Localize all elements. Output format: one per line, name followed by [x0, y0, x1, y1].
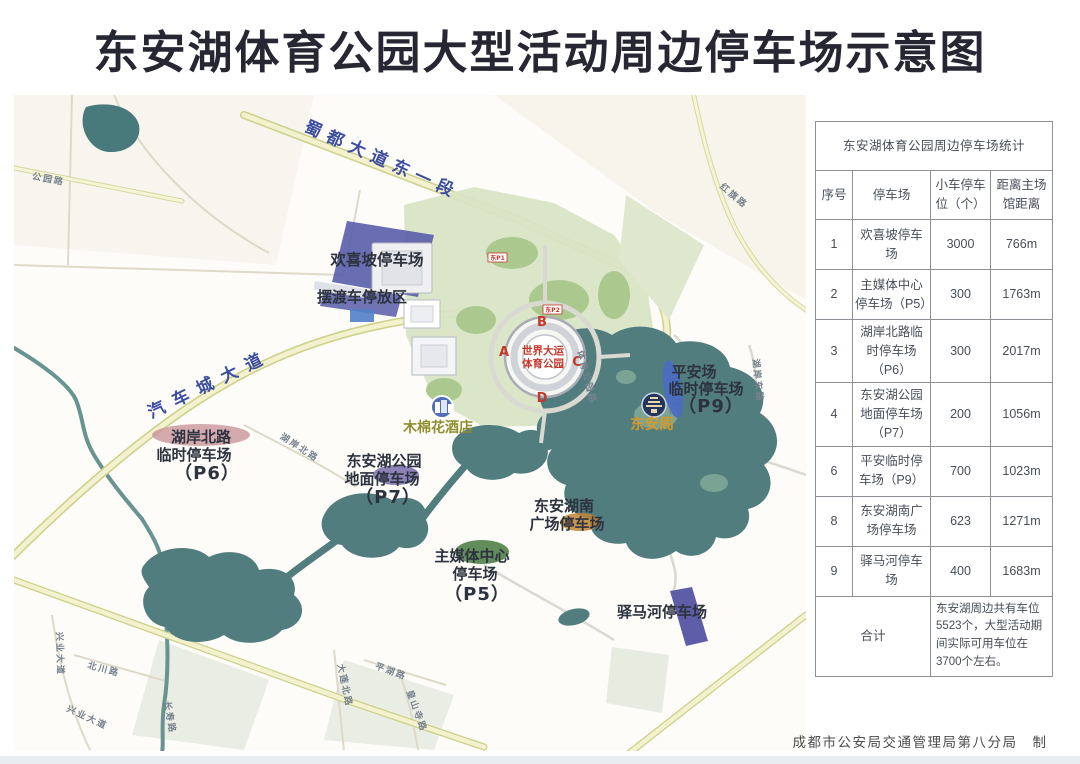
table-row: 4 东安湖公园地面停车场（P7） 200 1056m: [816, 383, 1053, 446]
stadium-name-line1: 世界大运: [522, 344, 564, 357]
gate-badge-east-p2-label: 东P2: [545, 306, 560, 314]
label-hotel: 木棉花酒店: [402, 419, 473, 436]
col-header-spaces: 小车停车位（个）: [931, 171, 991, 220]
col-header-name: 停车场: [853, 171, 931, 220]
parking-polygon-small: [350, 309, 374, 322]
label-p6-line1: 湖岸北路: [171, 428, 232, 446]
page-title: 东安湖体育公园大型活动周边停车场示意图: [0, 16, 1080, 81]
table-row: 6 平安临时停车场（P9） 700 1023m: [816, 446, 1053, 496]
label-p5-line1: 主媒体中心: [434, 547, 509, 565]
cell-spaces: 400: [931, 546, 991, 596]
col-header-no: 序号: [816, 171, 853, 220]
hotel-icon: [431, 396, 453, 418]
label-p6-line3: （P6）: [174, 463, 240, 484]
cell-no: 9: [816, 546, 853, 596]
label-shuttle-area: 摆渡车停放区: [317, 288, 407, 306]
cell-spaces: 3000: [931, 220, 991, 270]
cell-name: 东安湖南广场停车场: [853, 496, 931, 546]
cell-name: 欢喜坡停车场: [853, 220, 931, 270]
cell-name: 湖岸北路临时停车场（P6）: [853, 320, 931, 383]
gate-label-b: B: [537, 315, 547, 330]
col-header-distance: 距离主场馆距离: [991, 171, 1053, 220]
parking-stats-table: 东安湖体育公园周边停车场统计 序号 停车场 小车停车位（个） 距离主场馆距离 1…: [815, 121, 1053, 677]
cell-distance: 1683m: [991, 546, 1053, 596]
table-row: 9 驿马河停车场 400 1683m: [816, 546, 1053, 596]
label-south-line2: 广场停车场: [529, 515, 604, 533]
label-south-line1: 东安湖南: [534, 497, 594, 515]
label-p7-line3: （P7）: [355, 487, 421, 508]
map-canvas: B A C D 世界大运 体育公园 东P1 东P2 公园路 红旗路 湖岸北路 湖…: [14, 95, 806, 751]
table-row: 1 欢喜坡停车场 3000 766m: [816, 220, 1053, 270]
cell-spaces: 300: [931, 320, 991, 383]
label-p9-line3: （P9）: [678, 396, 744, 417]
cell-spaces: 300: [931, 270, 991, 320]
table-row: 8 东安湖南广场停车场 623 1271m: [816, 496, 1053, 546]
cell-no: 4: [816, 383, 853, 446]
total-label: 合计: [816, 596, 931, 676]
total-note: 东安湖周边共有车位5523个，大型活动期间实际可用车位在3700个左右。: [931, 596, 1053, 676]
cell-distance: 1763m: [991, 270, 1053, 320]
label-p5-line2: 停车场: [452, 565, 497, 583]
table-title: 东安湖体育公园周边停车场统计: [816, 122, 1053, 171]
parcel: [606, 647, 669, 713]
cell-name: 东安湖公园地面停车场（P7）: [853, 383, 931, 446]
stadium-field: [523, 335, 567, 379]
cell-distance: 766m: [991, 220, 1053, 270]
pavilion-icon: [642, 393, 666, 417]
label-p7-line2: 地面停车场: [344, 470, 419, 488]
arena-roof: [411, 306, 433, 322]
label-p7-line1: 东安湖公园: [346, 452, 421, 470]
cell-name: 主媒体中心停车场（P5）: [853, 270, 931, 320]
cell-distance: 2017m: [991, 320, 1053, 383]
label-huanxipo: 欢喜坡停车场: [329, 250, 423, 269]
label-pavilion: 东安阁: [630, 415, 674, 433]
table-total-row: 合计 东安湖周边共有车位5523个，大型活动期间实际可用车位在3700个左右。: [816, 596, 1053, 676]
cell-no: 1: [816, 220, 853, 270]
cell-spaces: 623: [931, 496, 991, 546]
label-p5-line3: （P5）: [444, 584, 510, 605]
bottom-strip: [0, 756, 1080, 764]
gate-label-d: D: [537, 391, 548, 406]
table-row: 3 湖岸北路临时停车场（P6） 300 2017m: [816, 320, 1053, 383]
label-p9-line1: 平安场: [671, 363, 716, 381]
cell-name: 平安临时停车场（P9）: [853, 446, 931, 496]
cell-distance: 1056m: [991, 383, 1053, 446]
cell-spaces: 700: [931, 446, 991, 496]
gate-label-a: A: [499, 345, 509, 360]
cell-name: 驿马河停车场: [853, 546, 931, 596]
cell-distance: 1271m: [991, 496, 1053, 546]
cell-no: 6: [816, 446, 853, 496]
cell-no: 3: [816, 320, 853, 383]
stadium-name-line2: 体育公园: [522, 357, 564, 370]
label-yimahe: 驿马河停车场: [617, 603, 707, 621]
cell-spaces: 200: [931, 383, 991, 446]
label-p6-line2: 临时停车场: [156, 446, 231, 464]
table-row: 2 主媒体中心停车场（P5） 300 1763m: [816, 270, 1053, 320]
gate-badge-east-p1-label: 东P1: [490, 254, 505, 262]
cell-no: 2: [816, 270, 853, 320]
cell-distance: 1023m: [991, 446, 1053, 496]
cell-no: 8: [816, 496, 853, 546]
parking-map: B A C D 世界大运 体育公园 东P1 东P2 公园路 红旗路 湖岸北路 湖…: [14, 95, 806, 751]
credit-line: 成都市公安局交通管理局第八分局 制: [780, 731, 1060, 751]
natatorium-roof: [421, 345, 447, 367]
